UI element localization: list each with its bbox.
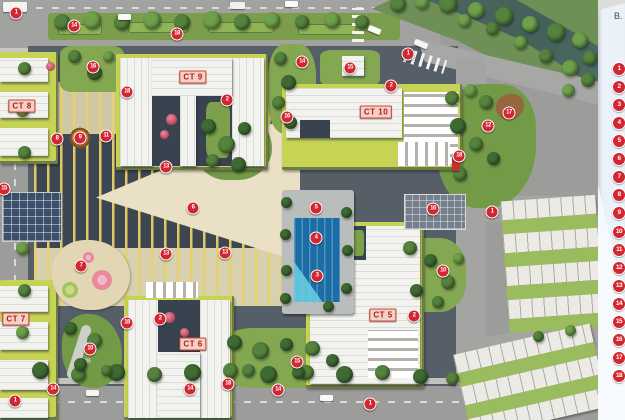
legend-title: B. [614, 11, 623, 21]
legend-item-6: 6 [612, 152, 625, 166]
tree-icon [101, 365, 112, 376]
masterplan-screenshot: CT 8CT 9CT 10CT 7CT 6CT 5 11418161821415… [0, 0, 625, 420]
flowering-tree [180, 328, 189, 337]
map-marker-15: 15 [344, 62, 357, 75]
map-marker-1: 1 [402, 48, 415, 61]
tree-icon [295, 15, 309, 29]
legend-item-1: 1 [612, 62, 625, 76]
tree-icon [252, 342, 269, 359]
tree-icon [18, 284, 31, 297]
legend-item-15: 15 [612, 315, 625, 329]
tree-icon [547, 23, 565, 41]
tree-icon [539, 49, 553, 63]
map-marker-6: 6 [187, 202, 200, 215]
legend-item-5: 5 [612, 134, 625, 148]
tree-icon [324, 12, 340, 28]
map-marker-4: 4 [310, 232, 323, 245]
tree-icon [201, 119, 216, 134]
legend-item-7: 7 [612, 170, 625, 184]
tree-icon [413, 369, 428, 384]
tree-icon [326, 354, 339, 367]
tree-icon [218, 136, 235, 153]
tree-icon [68, 50, 81, 63]
playground-circle [62, 282, 78, 298]
ct9-core [180, 96, 196, 166]
legend-panel: B. 123456789101112131415161718 [598, 0, 625, 420]
tree-icon [479, 95, 493, 109]
townhouse-cluster [500, 195, 598, 337]
vehicle-icon [86, 390, 99, 396]
flowering-tree [160, 130, 169, 139]
tree-icon [495, 7, 513, 25]
tree-icon [355, 15, 369, 29]
map-marker-18: 18 [121, 317, 134, 330]
tree-icon [583, 51, 597, 65]
tree-icon [280, 229, 291, 240]
tree-icon [83, 11, 101, 29]
map-marker-11: 11 [100, 130, 113, 143]
tree-icon [581, 73, 595, 87]
tree-icon [341, 207, 352, 218]
tree-icon [281, 197, 292, 208]
legend-item-17: 17 [612, 351, 625, 365]
tree-icon [231, 157, 246, 172]
tree-icon [562, 60, 578, 76]
legend-item-3: 3 [612, 98, 625, 112]
tree-icon [487, 152, 500, 165]
map-marker-8: 8 [51, 133, 64, 146]
legend-item-9: 9 [612, 206, 625, 220]
map-marker-2: 2 [385, 80, 398, 93]
map-marker-1: 1 [9, 395, 22, 408]
tree-icon [16, 242, 29, 255]
map-marker-16: 16 [281, 111, 294, 124]
vehicle-icon [320, 395, 333, 401]
map-marker-7: 7 [75, 260, 88, 273]
parking-bays [146, 282, 198, 298]
map-marker-1: 1 [10, 7, 23, 20]
map-marker-9: 9 [74, 132, 87, 145]
tree-icon [280, 338, 293, 351]
tree-icon [336, 366, 353, 383]
map-marker-18: 18 [121, 86, 134, 99]
tree-icon [572, 32, 588, 48]
building-label-ct6: CT 6 [179, 338, 206, 351]
tree-icon [227, 335, 242, 350]
building-ct9-wing [232, 58, 264, 166]
legend-item-14: 14 [612, 297, 625, 311]
tree-icon [458, 14, 471, 27]
tree-icon [469, 137, 483, 151]
tree-icon [562, 84, 575, 97]
map-marker-14: 14 [296, 56, 309, 69]
building-label-ct10: CT 10 [360, 106, 392, 119]
tree-icon [281, 75, 296, 90]
map-marker-17: 17 [503, 107, 516, 120]
map-marker-10: 10 [437, 265, 450, 278]
site-plan-map: CT 8CT 9CT 10CT 7CT 6CT 5 11418161821415… [0, 0, 598, 420]
tree-icon [375, 365, 390, 380]
map-marker-18: 18 [222, 378, 235, 391]
tree-icon [18, 62, 31, 75]
vehicle-icon [230, 2, 245, 9]
map-marker-2: 2 [408, 310, 421, 323]
map-marker-10: 10 [84, 343, 97, 356]
legend-item-11: 11 [612, 243, 625, 257]
map-marker-14: 14 [184, 383, 197, 396]
tree-icon [342, 245, 353, 256]
legend-item-2: 2 [612, 80, 625, 94]
map-marker-16: 16 [87, 61, 100, 74]
tree-icon [453, 253, 464, 264]
tree-icon [323, 301, 334, 312]
tree-icon [242, 364, 255, 377]
map-marker-13: 13 [160, 161, 173, 174]
tree-icon [445, 91, 459, 105]
building-ct7-wing [0, 398, 48, 418]
sports-court-canopy [2, 192, 62, 242]
tree-icon [272, 96, 285, 109]
map-marker-12: 12 [482, 120, 495, 133]
building-ct9-wing [120, 58, 152, 166]
flowering-tree [46, 62, 55, 71]
tree-icon [238, 122, 251, 135]
tree-icon [341, 283, 352, 294]
ct10-courtyard [300, 120, 330, 138]
tree-icon [143, 11, 161, 29]
tree-icon [432, 296, 444, 308]
tree-icon [281, 265, 292, 276]
map-marker-14: 14 [68, 20, 81, 33]
tree-icon [280, 293, 291, 304]
tree-icon [234, 14, 250, 30]
tree-icon [533, 331, 544, 342]
tree-icon [486, 22, 499, 35]
map-marker-1: 1 [364, 398, 377, 411]
map-marker-2: 2 [154, 313, 167, 326]
building-ct6-wing [200, 300, 230, 418]
legend-item-12: 12 [612, 261, 625, 275]
tree-icon [264, 12, 280, 28]
tree-icon [410, 284, 423, 297]
tree-icon [260, 366, 277, 383]
vehicle-icon [285, 1, 298, 7]
legend-item-18: 18 [612, 369, 625, 383]
flowering-tree [166, 114, 177, 125]
tree-icon [184, 364, 201, 381]
building-label-ct8: CT 8 [8, 100, 35, 113]
map-marker-13: 13 [219, 247, 232, 260]
map-marker-18: 18 [453, 150, 466, 163]
legend-item-16: 16 [612, 333, 625, 347]
tree-icon [64, 322, 77, 335]
map-marker-13: 13 [160, 248, 173, 261]
map-marker-2: 2 [221, 94, 234, 107]
tree-icon [450, 118, 466, 134]
legend-item-10: 10 [612, 225, 625, 239]
tree-icon [464, 84, 477, 97]
playground-circle [92, 270, 112, 290]
tree-icon [446, 372, 459, 385]
tree-icon [522, 16, 538, 32]
tree-icon [424, 254, 437, 267]
tree-icon [514, 36, 527, 49]
legend-item-13: 13 [612, 279, 625, 293]
tree-icon [74, 358, 87, 371]
building-label-ct5: CT 5 [369, 309, 396, 322]
building-label-ct7: CT 7 [2, 313, 29, 326]
tree-icon [147, 367, 162, 382]
map-marker-1: 1 [486, 206, 499, 219]
tree-icon [18, 146, 31, 159]
tree-icon [223, 363, 238, 378]
map-marker-15: 15 [291, 356, 304, 369]
tree-icon [274, 52, 287, 65]
map-marker-3: 3 [311, 270, 324, 283]
road-marking [4, 401, 464, 403]
tree-icon [32, 362, 49, 379]
vehicle-icon [118, 14, 131, 20]
legend-item-4: 4 [612, 116, 625, 130]
map-marker-18: 18 [171, 28, 184, 41]
tree-icon [206, 154, 219, 167]
map-marker-14: 14 [272, 384, 285, 397]
tree-icon [305, 341, 320, 356]
playground [52, 240, 130, 310]
building-label-ct9: CT 9 [179, 71, 206, 84]
tree-icon [468, 2, 484, 18]
legend-item-8: 8 [612, 188, 625, 202]
tree-icon [16, 326, 29, 339]
map-marker-14: 14 [47, 383, 60, 396]
parking-bays [398, 142, 450, 166]
tree-icon [203, 11, 221, 29]
tree-icon [103, 51, 114, 62]
tree-icon [403, 241, 417, 255]
map-marker-5: 5 [310, 202, 323, 215]
map-marker-16: 16 [427, 203, 440, 216]
tree-icon [565, 325, 576, 336]
